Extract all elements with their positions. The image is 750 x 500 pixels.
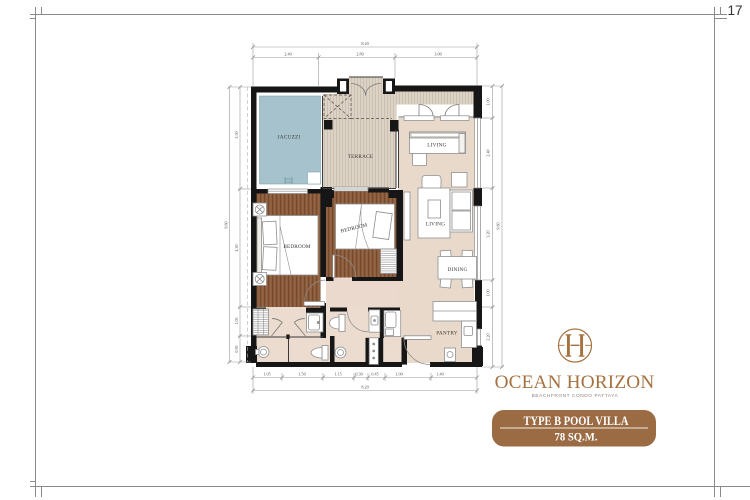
svg-text:BEDROOM: BEDROOM — [283, 244, 310, 250]
svg-text:3.20: 3.20 — [486, 230, 491, 237]
svg-text:2.80: 2.80 — [356, 52, 363, 57]
svg-text:JACUZZI: JACUZZI — [278, 135, 301, 141]
svg-text:8.20: 8.20 — [361, 385, 368, 390]
svg-text:2.20: 2.20 — [486, 333, 491, 340]
svg-text:1.40: 1.40 — [436, 372, 443, 377]
svg-text:BEACHFRONT CONDO PATTAYA: BEACHFRONT CONDO PATTAYA — [532, 393, 619, 399]
svg-text:1.00: 1.00 — [486, 289, 491, 296]
svg-text:3.50: 3.50 — [234, 131, 239, 138]
svg-text:9.60: 9.60 — [224, 221, 229, 228]
svg-text:TYPE B POOL VILLA: TYPE B POOL VILLA — [524, 414, 629, 428]
svg-text:4.30: 4.30 — [234, 244, 239, 251]
svg-text:DINING: DINING — [447, 267, 467, 273]
svg-text:PANTRY: PANTRY — [436, 331, 458, 337]
svg-text:0.95: 0.95 — [234, 345, 239, 352]
svg-text:1.00: 1.00 — [486, 98, 491, 105]
svg-text:78 SQ.M.: 78 SQ.M. — [555, 431, 598, 444]
svg-text:17: 17 — [727, 3, 742, 18]
svg-text:1.05: 1.05 — [234, 317, 239, 324]
svg-text:LIVING: LIVING — [427, 143, 446, 149]
svg-text:1.00: 1.00 — [395, 372, 402, 377]
svg-text:1.50: 1.50 — [298, 372, 305, 377]
svg-text:0.30: 0.30 — [355, 372, 362, 377]
svg-text:2.40: 2.40 — [284, 52, 291, 57]
svg-text:3.00: 3.00 — [434, 52, 441, 57]
svg-text:LIVING: LIVING — [426, 222, 445, 228]
svg-text:9.60: 9.60 — [496, 222, 501, 229]
svg-text:2.40: 2.40 — [486, 149, 491, 156]
svg-text:TERRACE: TERRACE — [348, 154, 374, 160]
svg-text:OCEAN HORIZON: OCEAN HORIZON — [495, 372, 655, 393]
svg-text:1.05: 1.05 — [263, 372, 270, 377]
svg-text:0.45: 0.45 — [371, 372, 378, 377]
svg-text:1.15: 1.15 — [334, 372, 341, 377]
svg-text:8.20: 8.20 — [361, 41, 368, 46]
